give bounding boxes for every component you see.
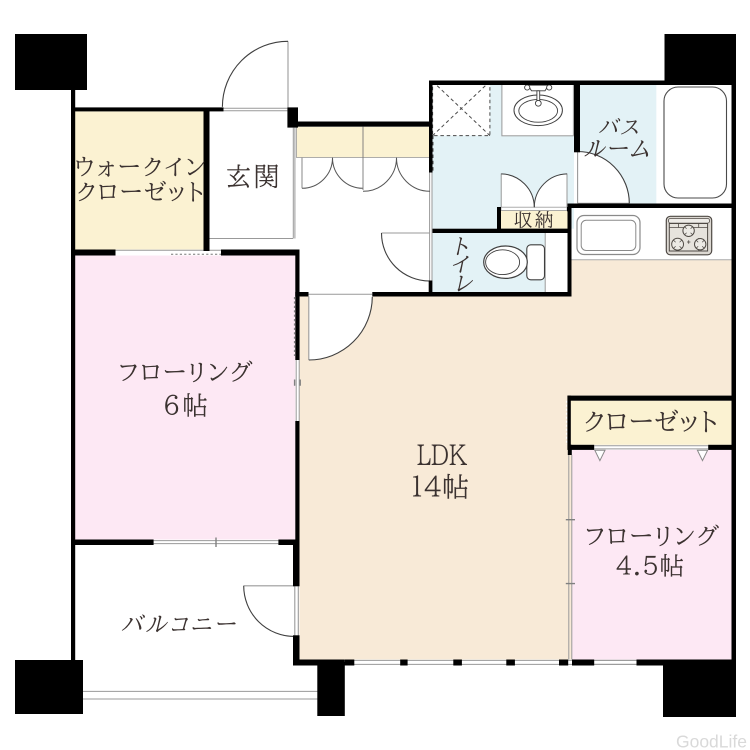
svg-text:GoodLife: GoodLife: [676, 732, 747, 750]
